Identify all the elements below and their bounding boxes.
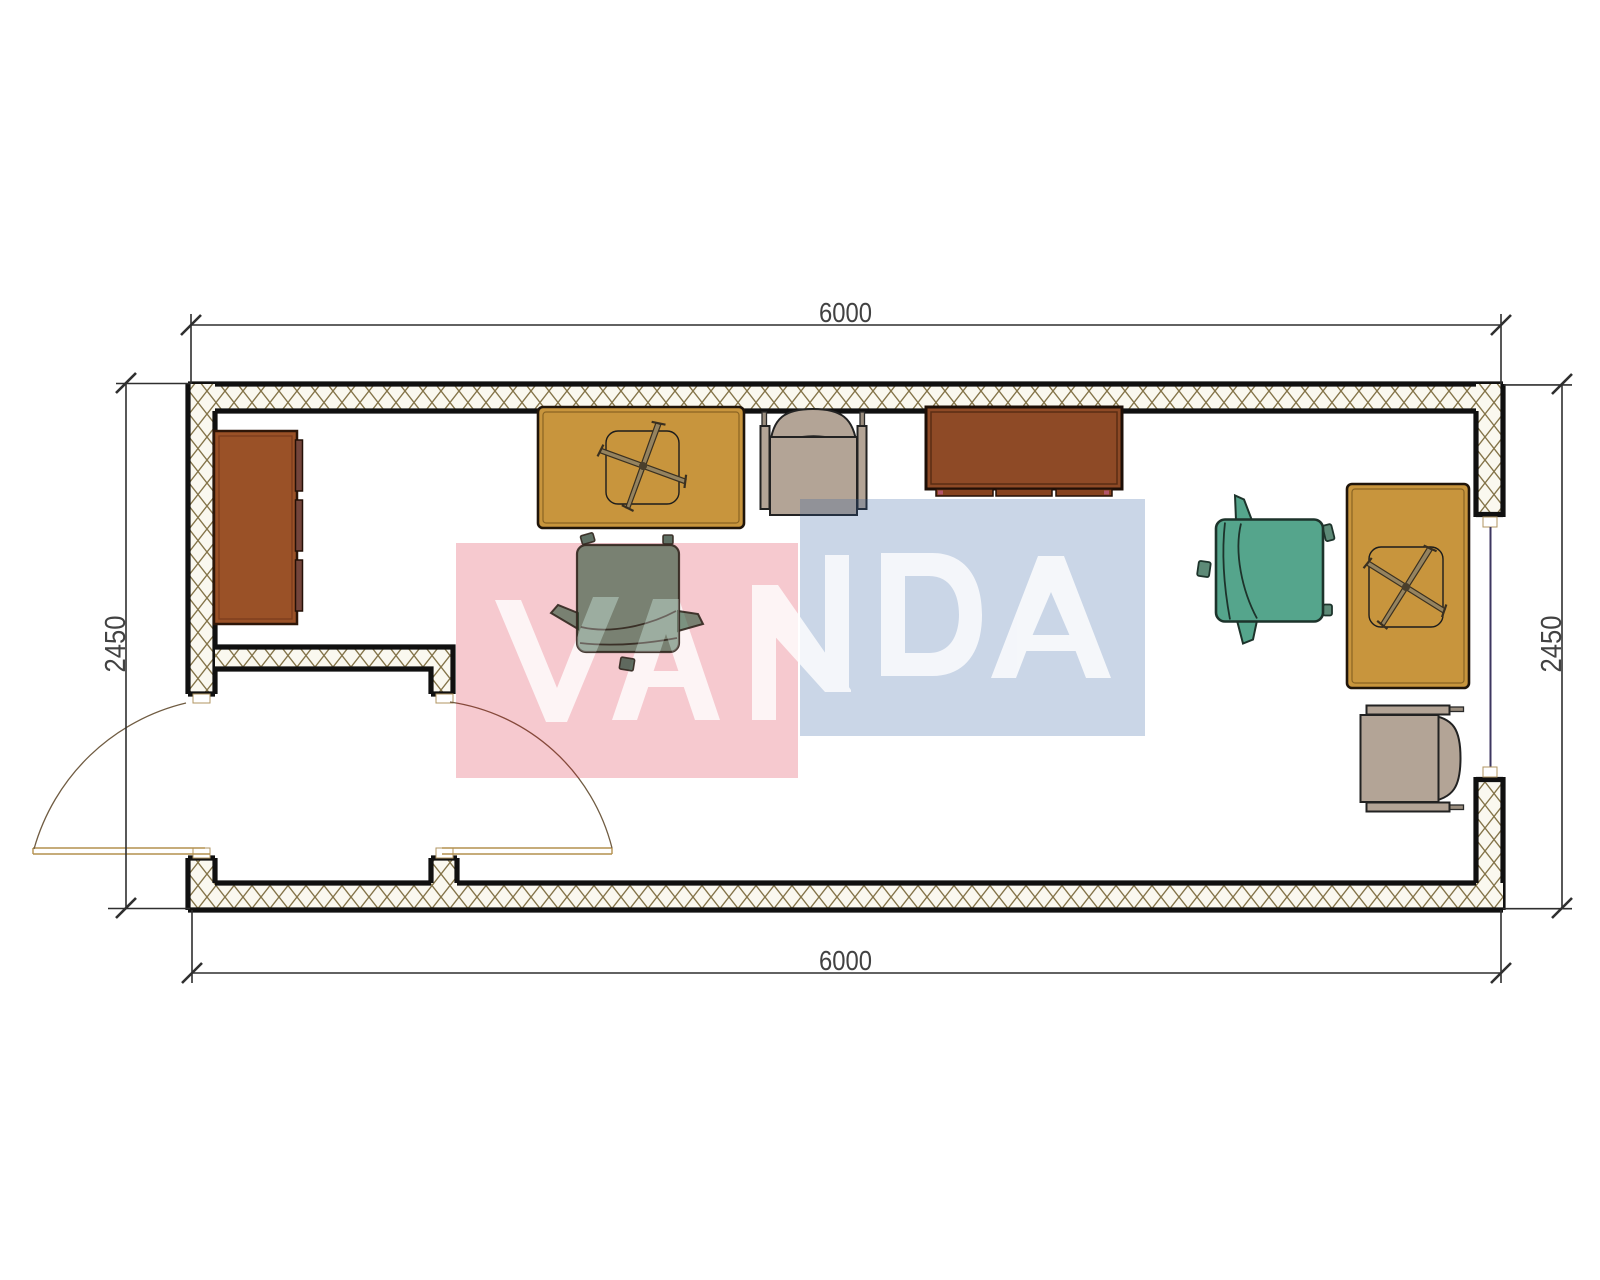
svg-text:2450: 2450 <box>100 616 132 673</box>
svg-text:6000: 6000 <box>819 945 872 976</box>
svg-text:6000: 6000 <box>819 297 872 328</box>
svg-text:2450: 2450 <box>1536 616 1568 673</box>
